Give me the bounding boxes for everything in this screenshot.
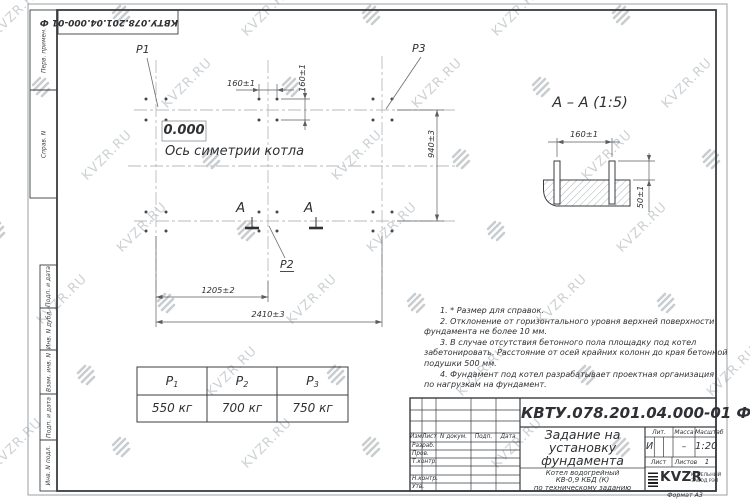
notes-block: 1. * Размер для справок. 2. Отклонение о… xyxy=(424,306,716,391)
load-table-value-p2: 700 кг xyxy=(207,395,277,422)
dim-bolt-spacing-v: 160±1 xyxy=(297,63,307,93)
tb-sign-nkontr: Н.контр. xyxy=(412,476,438,482)
section-cut-marks xyxy=(245,217,323,228)
tb-scale-label: Масштаб xyxy=(695,428,716,437)
p-subscript: 2 xyxy=(243,380,248,389)
tb-sheets-value: 1 xyxy=(700,458,714,467)
section-letter-left: A xyxy=(236,200,245,216)
load-point-label-p3: P3 xyxy=(412,42,426,55)
tb-col-list: Лист xyxy=(422,433,436,442)
load-table-value-p3: 750 кг xyxy=(277,395,348,422)
dim-bolt-spacing-h: 160±1 xyxy=(225,78,257,88)
margin-label-podp-data-1: Подп. и дата xyxy=(40,265,57,308)
logo-sub-line-2: ЗАВОД РЭП xyxy=(691,479,718,484)
tb-title-line-3: фундамента xyxy=(520,454,645,467)
axis-of-symmetry-label: Ось симетрии котла xyxy=(165,144,304,159)
doc-number-rotated: КВТУ.078.201.04.000-01 Ф xyxy=(58,10,178,34)
load-table-header-p2: P2 xyxy=(207,367,277,395)
logo-sub-line-1: КОТЕЛЬНЫЙ xyxy=(691,473,721,478)
tb-doc-number: КВТУ.078.201.04.000-01 Ф xyxy=(521,399,715,427)
note-line: 2. Отклонение от горизонтального уровня … xyxy=(424,317,716,328)
level-mark-value: 0.000 xyxy=(162,121,206,141)
tb-mass-label: Масса xyxy=(673,428,695,437)
tb-lit-value: И xyxy=(645,437,654,457)
logo-stripes-icon xyxy=(648,471,658,487)
dim-section-bolt-spacing: 160±1 xyxy=(566,129,602,139)
margin-label-perv-primen: Перв. примен. xyxy=(30,10,57,90)
tb-scale-value: 1:20 xyxy=(695,437,716,457)
load-table-header-p3: P3 xyxy=(277,367,348,395)
margin-label-inv-n-podl: Инв. N подл. xyxy=(40,440,57,491)
tb-sheets-label: Листов xyxy=(672,458,700,467)
tb-sign-utv: Утв. xyxy=(412,484,424,490)
drawing-sheet: KVZR.RUKVZR.RUKVZR.RUKVZR.RUKVZR.RUKVZR.… xyxy=(0,0,750,500)
tb-subtitle-line-3: по техническому заданию xyxy=(520,485,645,492)
note-line: забетонировать. Расстояние от осей крайн… xyxy=(424,348,716,359)
tb-col-ndokum: N докум. xyxy=(436,433,471,442)
margin-label-vzam-inv-n: Взам. инв. N xyxy=(40,350,57,394)
section-view xyxy=(544,161,631,206)
margin-label-podp-data-2: Подп. и дата xyxy=(40,394,57,440)
tb-col-data: Дата xyxy=(496,433,520,442)
note-line: 4. Фундамент под котел разрабатывает про… xyxy=(424,370,716,381)
p-subscript: 1 xyxy=(173,380,178,389)
section-letter-right: A xyxy=(304,200,313,216)
tb-col-podp: Подп. xyxy=(471,433,496,442)
note-line: фундамента не более 10 мм. xyxy=(424,327,716,338)
note-line: 3. В случае отсутствия бетонного пола пл… xyxy=(424,338,716,349)
load-point-label-p2: P2 xyxy=(280,258,294,272)
tb-sign-tkontr: Т.контр. xyxy=(412,459,437,465)
margin-label-sprav-n: Справ. N xyxy=(30,90,57,198)
p-symbol: P xyxy=(306,373,314,388)
dim-plan-half-width: 1205±2 xyxy=(198,285,238,295)
dim-plan-height: 940±3 xyxy=(426,127,436,161)
tb-lit-label: Лит. xyxy=(645,428,673,437)
section-view-title: А – А (1:5) xyxy=(540,95,640,111)
note-line: 1. * Размер для справок. xyxy=(424,306,716,317)
tb-sign-prov: Пров. xyxy=(412,451,429,457)
load-table-value-p1: 550 кг xyxy=(137,395,207,422)
tb-col-izm: Изм. xyxy=(410,433,422,442)
load-point-label-p1: P1 xyxy=(136,43,150,56)
tb-sheet-label: Лист xyxy=(645,458,672,467)
p-subscript: 3 xyxy=(314,380,319,389)
tb-sign-razrab: Разраб. xyxy=(412,443,435,449)
note-line: по нагрузкам на фундамент. xyxy=(424,380,716,391)
dim-section-bolt-protrusion: 50±1 xyxy=(635,184,645,210)
note-line: подушки 500 мм. xyxy=(424,359,716,370)
dim-plan-full-width: 2410±3 xyxy=(248,309,288,319)
tb-mass-value: – xyxy=(673,437,695,457)
anchor-dots xyxy=(145,98,394,233)
format-note: Формат А3 xyxy=(655,492,715,499)
load-table-header-p1: P1 xyxy=(137,367,207,395)
margin-label-inv-n-dubl: Инв. N дубл. xyxy=(40,308,57,350)
